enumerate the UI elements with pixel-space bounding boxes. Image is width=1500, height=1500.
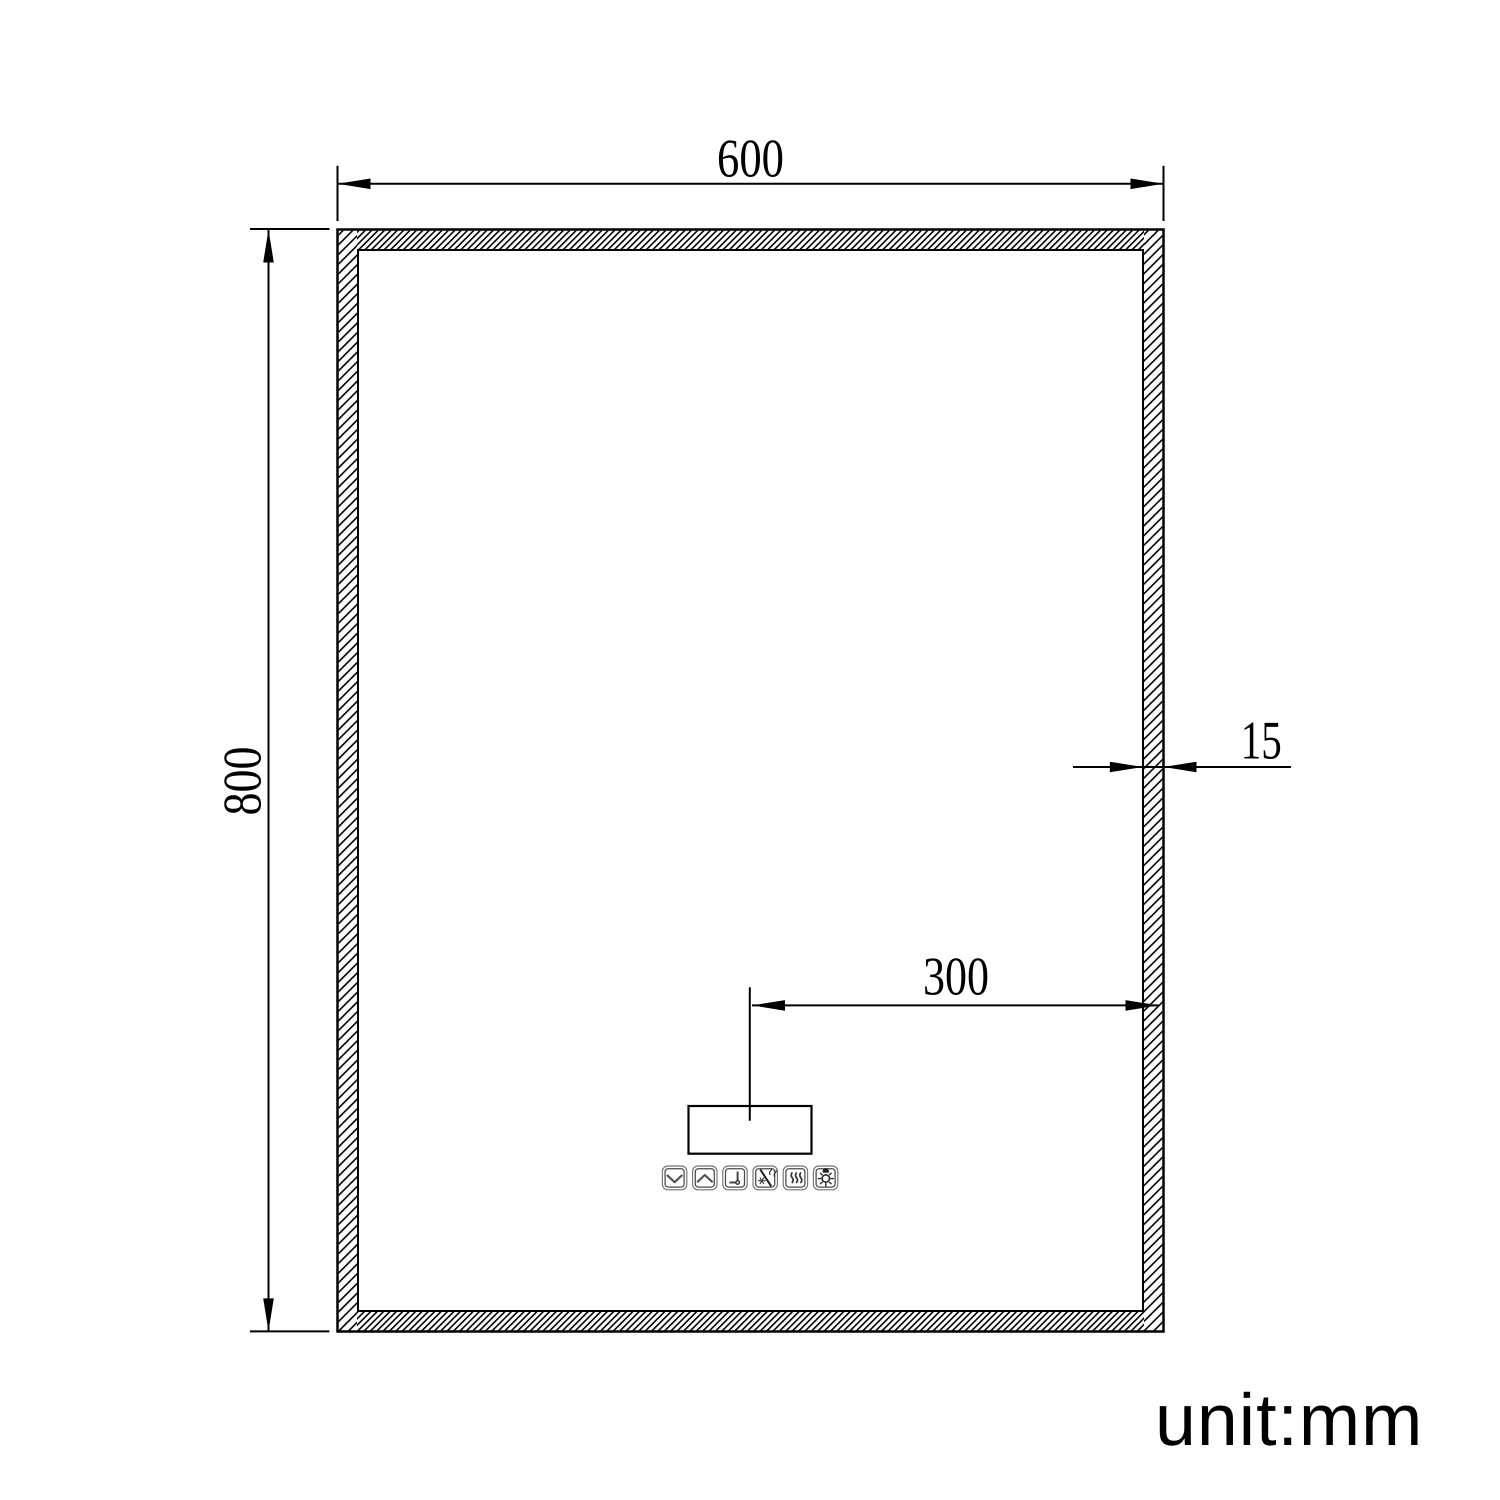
svg-text:600: 600 [717, 128, 784, 189]
svg-text:800: 800 [212, 747, 273, 816]
svg-text:unit:mm: unit:mm [1155, 1378, 1423, 1461]
svg-text:15: 15 [1241, 710, 1282, 771]
svg-text:300: 300 [923, 945, 989, 1006]
